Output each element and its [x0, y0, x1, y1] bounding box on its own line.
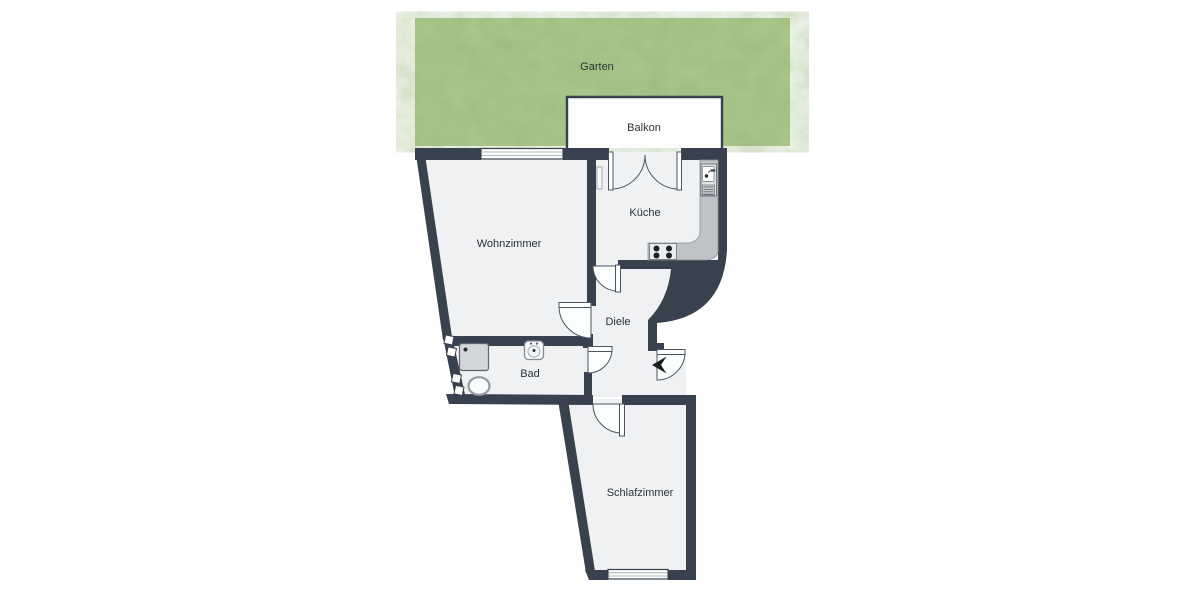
toilet-icon	[469, 377, 490, 395]
bathroom-sink-icon	[525, 341, 544, 360]
living-room-window	[481, 149, 563, 160]
wall-bedroom-bottom-left	[585, 570, 608, 580]
label-wohnzimmer: Wohnzimmer	[477, 238, 542, 250]
label-garten: Garten	[580, 61, 614, 73]
wall-living-kitchen-divider	[587, 148, 596, 306]
wall-bottom-band-left	[446, 394, 593, 405]
wall-bedroom-right	[686, 395, 696, 580]
floorplan-canvas: Garten Balkon Küche Wohnzimmer Diele Bad…	[0, 0, 1200, 600]
wall-bedroom-top-right	[622, 395, 688, 405]
bedroom-window	[608, 570, 668, 580]
wall-top-middle	[563, 148, 609, 160]
wall-bedroom-bottom-right	[668, 570, 696, 580]
stove-icon	[650, 244, 677, 260]
radiator-icon	[597, 167, 602, 189]
label-balkon: Balkon	[627, 122, 661, 134]
label-bad: Bad	[520, 368, 540, 380]
label-schlafzimmer: Schlafzimmer	[607, 487, 674, 499]
floorplan-svg: Garten Balkon Küche Wohnzimmer Diele Bad…	[0, 0, 1200, 600]
label-diele: Diele	[605, 316, 630, 328]
label-kueche: Küche	[629, 207, 660, 219]
kitchen-sink-icon	[701, 164, 717, 196]
shower-icon	[460, 344, 489, 371]
